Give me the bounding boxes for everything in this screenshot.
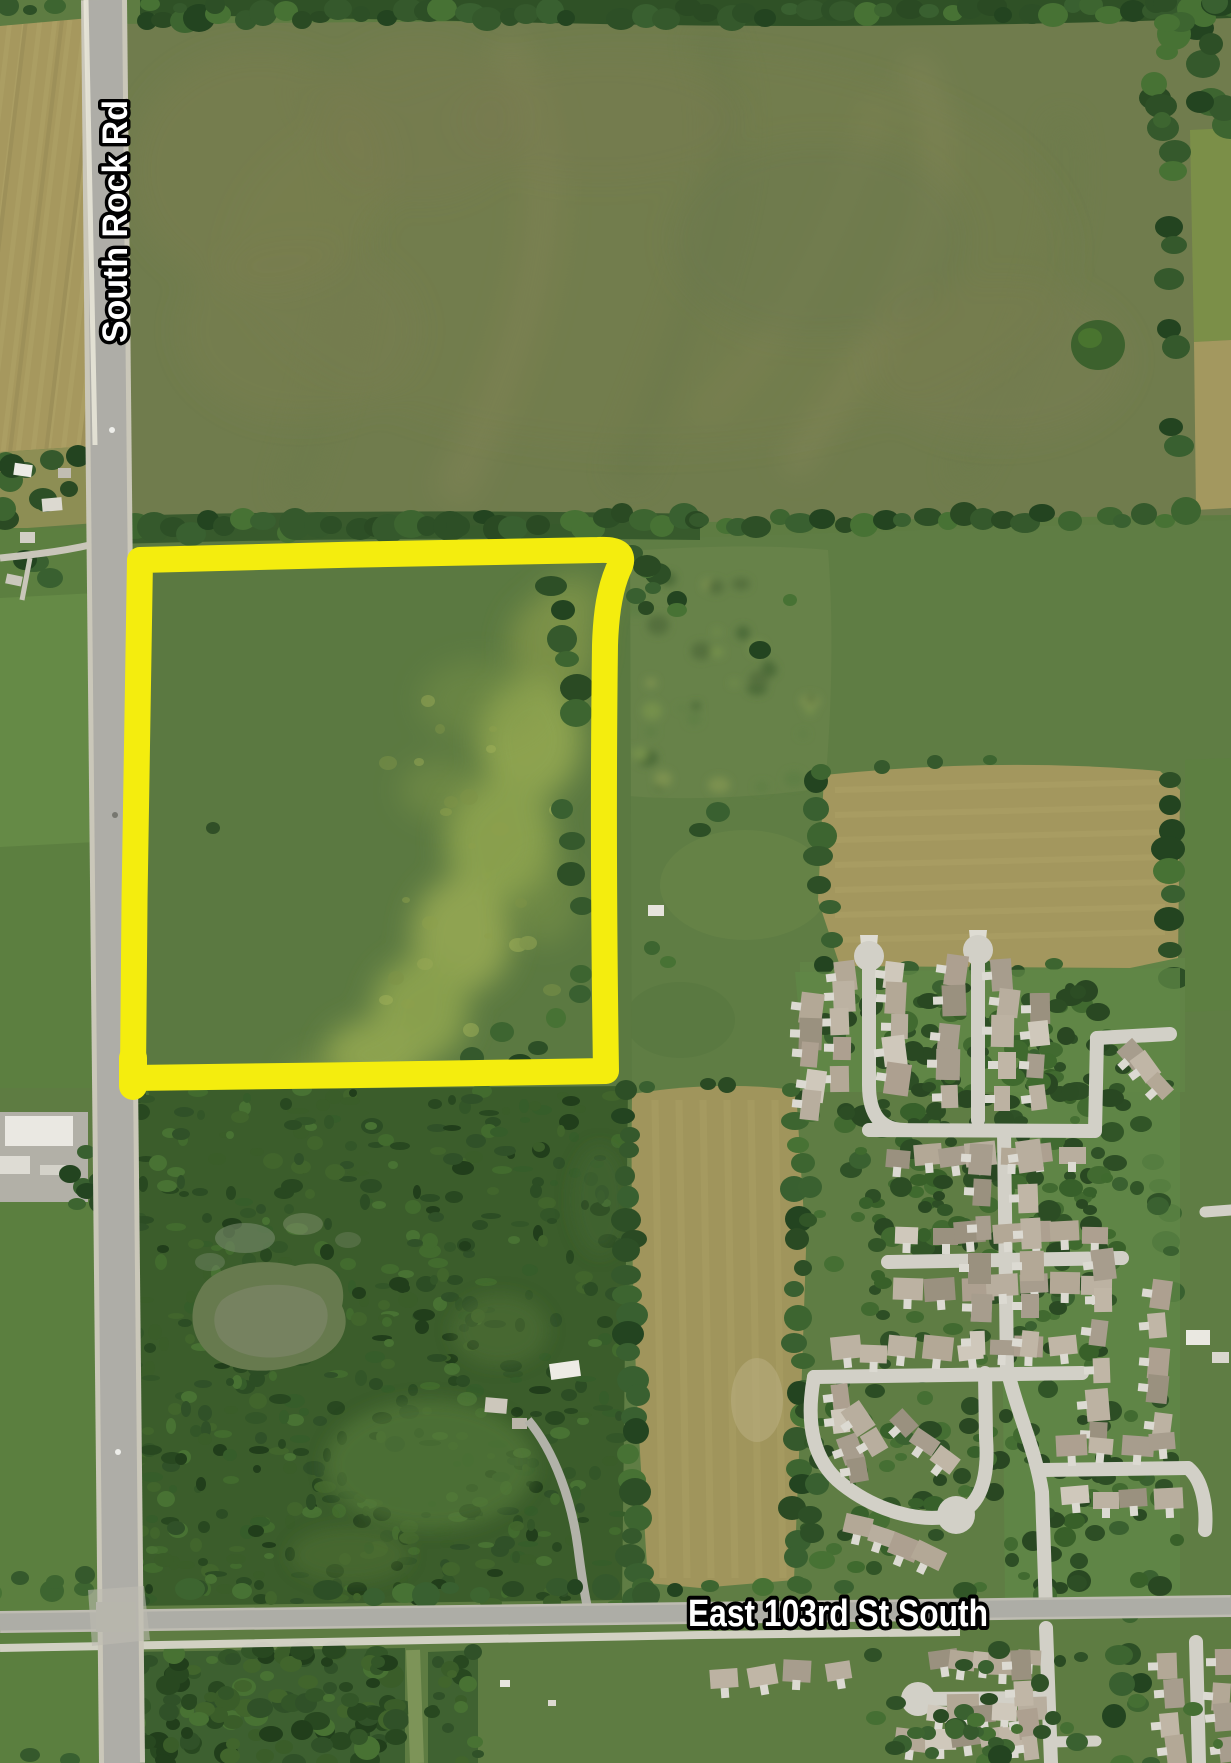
svg-text:South Rock Rd: South Rock Rd [96,100,135,343]
svg-text:East 103rd St South: East 103rd St South [688,1593,988,1635]
